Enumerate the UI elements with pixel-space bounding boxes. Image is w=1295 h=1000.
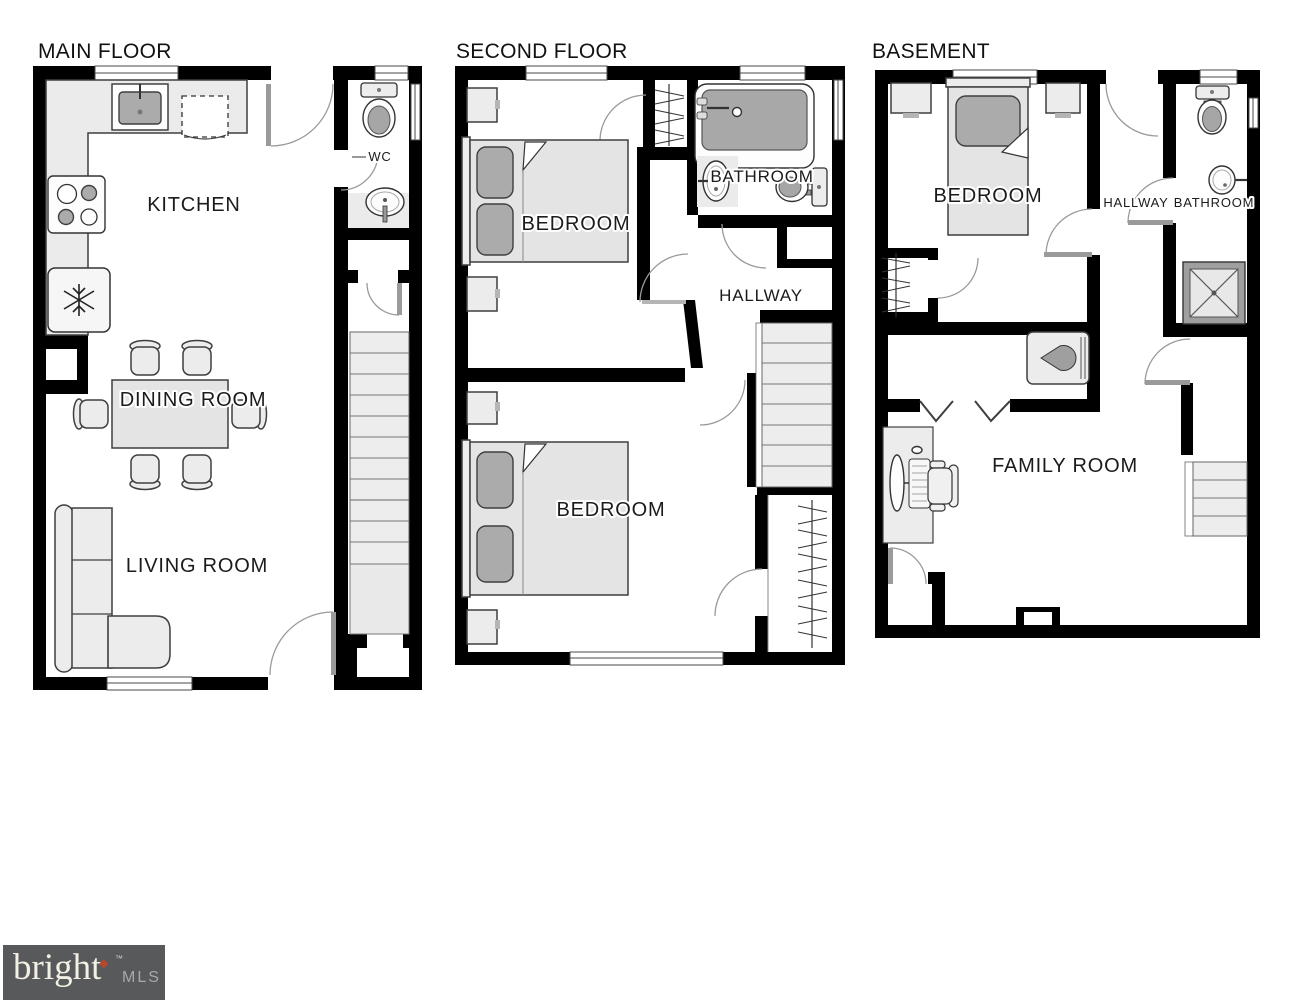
closet-hangers-icon xyxy=(768,495,827,652)
bathroom-door-arc xyxy=(722,224,766,268)
room-label-dining: DINING ROOM xyxy=(120,389,267,411)
front-door-arc xyxy=(270,612,333,675)
floor-title-second: SECOND FLOOR xyxy=(456,40,628,63)
entry-door-arc xyxy=(1106,84,1158,136)
bathtub-icon xyxy=(695,84,814,168)
mouse-icon xyxy=(912,447,922,454)
room-label-bathroom: BATHROOM xyxy=(1174,195,1255,210)
wc-sink-icon xyxy=(348,188,409,228)
floor-plan-second: SECOND FLOOR xyxy=(455,40,845,665)
shower-icon xyxy=(1183,262,1245,324)
exit-door-arc xyxy=(890,548,926,584)
floor-plan-basement: BASEMENT xyxy=(872,40,1260,638)
dishwasher-icon xyxy=(182,96,228,139)
monitor-icon xyxy=(890,455,904,511)
fridge-icon xyxy=(48,268,110,332)
floorplan-image: MAIN FLOOR xyxy=(0,0,1295,1000)
room-label-bedroom1: BEDROOM xyxy=(522,213,631,235)
family-door-leaf xyxy=(1145,380,1190,385)
logo-diamond-icon: ◆ xyxy=(99,956,108,970)
family-door-arc xyxy=(1145,339,1190,384)
bifold-door-icon xyxy=(920,401,953,421)
bedroom-door-leaf xyxy=(1044,252,1092,257)
dining-table-icon xyxy=(74,341,267,490)
brightmls-logo: bright ◆ ™ MLS xyxy=(3,945,165,1000)
bed-icon xyxy=(946,78,1030,235)
floor-title-main: MAIN FLOOR xyxy=(38,40,172,63)
bed-icon xyxy=(462,137,628,265)
closet2-door-arc xyxy=(715,569,762,616)
bedroom-door-arc xyxy=(1046,209,1092,255)
toilet-icon xyxy=(1196,86,1229,134)
bedroom2-door-arc xyxy=(700,380,745,425)
bifold-door-icon xyxy=(975,401,1010,421)
logo-brand-text: bright xyxy=(13,946,101,989)
room-label-bathroom: BATHROOM xyxy=(710,167,813,186)
sofa-icon xyxy=(55,505,170,672)
kitchen-door-leaf xyxy=(266,84,271,146)
room-label-bedroom: BEDROOM xyxy=(934,185,1043,207)
bathroom-door-leaf xyxy=(1128,220,1173,225)
kitchen-sink-icon xyxy=(112,84,168,130)
room-label-family: FAMILY ROOM xyxy=(992,455,1138,477)
exit-door-leaf xyxy=(888,548,893,584)
closet-door-arc xyxy=(600,95,646,141)
office-chair-icon xyxy=(928,461,958,511)
room-label-hallway: HALLWAY xyxy=(1103,195,1168,210)
floor-title-basement: BASEMENT xyxy=(872,40,990,63)
kitchen-door-arc xyxy=(271,84,333,146)
closet-hangers-icon xyxy=(655,84,684,146)
room-label-kitchen: KITCHEN xyxy=(147,194,240,216)
stairs-second-icon xyxy=(756,323,832,487)
logo-trademark: ™ xyxy=(115,954,123,963)
room-label-hallway: HALLWAY xyxy=(719,286,803,305)
wc-toilet-icon xyxy=(361,83,397,137)
desk-icon xyxy=(883,427,933,543)
stove-icon xyxy=(48,176,105,233)
front-door-leaf xyxy=(331,612,336,675)
room-label-living: LIVING ROOM xyxy=(126,555,268,577)
logo-mls-text: MLS xyxy=(122,969,161,987)
closet-door-arc xyxy=(938,258,978,298)
washer-icon xyxy=(1027,332,1089,384)
floor-plan-main: MAIN FLOOR xyxy=(33,40,422,690)
stairs-main-icon xyxy=(350,332,409,634)
stairs-basement-icon xyxy=(1185,462,1247,536)
room-label-bedroom2: BEDROOM xyxy=(557,499,666,521)
hall-door-arc xyxy=(367,283,399,315)
bathroom-sink-icon xyxy=(1209,166,1247,194)
hall-door-leaf xyxy=(397,283,402,315)
room-label-wc: WC xyxy=(368,149,391,164)
